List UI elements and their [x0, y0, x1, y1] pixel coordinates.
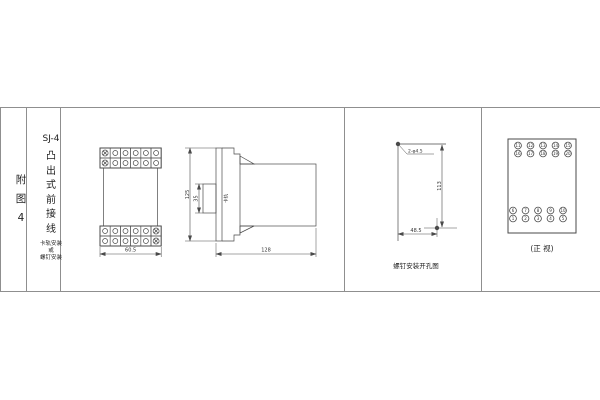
relay-body-side: [240, 164, 316, 226]
figure-label-char: 附: [16, 171, 27, 190]
svg-text:16: 16: [515, 151, 521, 156]
mounting-note-line: 卡轨安装: [40, 241, 62, 248]
figure-label-char: 图: [16, 190, 27, 209]
svg-text:3: 3: [537, 216, 540, 221]
figure-label-column: 附 图 4: [8, 108, 34, 291]
bottom-step-profile: [222, 226, 240, 241]
svg-text:4: 4: [549, 216, 552, 221]
leader-line: [398, 144, 407, 154]
figure-label-char: 4: [18, 209, 25, 228]
model-label: SJ-4: [42, 133, 59, 145]
drawing-sheet: 附 图 4 SJ-4 凸 出 式 前 接 线 卡轨安装 或 螺钉安装: [0, 0, 600, 400]
svg-text:18: 18: [540, 151, 546, 156]
terminal-numbers-bottom: 67891012345: [510, 207, 567, 222]
rail-dim-text: 35: [194, 195, 200, 201]
svg-text:14: 14: [553, 143, 559, 148]
svg-text:10: 10: [560, 208, 566, 213]
svg-text:7: 7: [524, 208, 527, 213]
svg-text:19: 19: [553, 151, 559, 156]
horizontal-dim-text: 48.5: [410, 228, 421, 234]
title-char: 式: [46, 179, 56, 194]
vertical-dim-text: 113: [437, 181, 443, 191]
width-dim-text: 60.5: [125, 248, 136, 254]
terminal-blocks-layer: [100, 148, 161, 246]
svg-text:6: 6: [512, 208, 515, 213]
mounting-note: 卡轨安装 或 螺钉安装: [40, 241, 62, 262]
front-view-caption: (正 视): [530, 243, 553, 253]
figure-band: 附 图 4 SJ-4 凸 出 式 前 接 线 卡轨安装 或 螺钉安装: [0, 107, 600, 292]
svg-text:5: 5: [562, 216, 565, 221]
title-char: 接: [46, 208, 56, 223]
drill-diagram-panel: 2-φ4.5 113 48.5 螺钉安装开孔图: [352, 108, 489, 291]
svg-text:20: 20: [565, 151, 571, 156]
divider-left-border: [0, 108, 1, 291]
top-step-profile: [222, 148, 240, 164]
title-char: 凸: [46, 150, 56, 165]
svg-text:17: 17: [528, 151, 534, 156]
svg-text:1: 1: [512, 216, 515, 221]
drill-diagram-svg: 2-φ4.5 113 48.5 螺钉安装开孔图: [352, 108, 489, 293]
svg-text:2: 2: [524, 216, 527, 221]
title-column: SJ-4 凸 出 式 前 接 线 卡轨安装 或 螺钉安装: [34, 108, 68, 291]
din-rail-notch: [203, 184, 216, 213]
front-plate-profile: [216, 148, 222, 241]
top-flange-wedge: [240, 156, 254, 164]
title-char: 前: [46, 194, 56, 209]
rail-label: 卡轨: [223, 194, 230, 203]
outline-views-panel: 60.5 卡轨 35 125: [68, 108, 352, 291]
mounting-note-line: 螺钉安装: [40, 255, 62, 262]
svg-text:8: 8: [537, 208, 540, 213]
svg-text:11: 11: [515, 143, 521, 148]
svg-text:12: 12: [528, 143, 534, 148]
title-char: 出: [46, 165, 56, 180]
terminal-view-panel: 11121314151617181920 67891012345 (正 视): [489, 108, 600, 291]
terminal-numbers-top: 11121314151617181920: [515, 142, 572, 157]
outline-views-svg: 60.5 卡轨 35 125: [68, 108, 352, 293]
drill-caption: 螺钉安装开孔图: [393, 261, 439, 270]
svg-text:13: 13: [540, 143, 546, 148]
terminal-view-svg: 11121314151617181920 67891012345 (正 视): [489, 108, 600, 293]
mounting-note-line: 或: [48, 248, 54, 255]
svg-text:15: 15: [565, 143, 571, 148]
svg-text:9: 9: [549, 208, 552, 213]
depth-dim-text: 128: [261, 248, 271, 254]
holes-label: 2-φ4.5: [408, 149, 423, 155]
title-char: 线: [46, 223, 56, 238]
title-vertical-text: 凸 出 式 前 接 线: [46, 150, 56, 237]
bottom-flange-wedge: [240, 226, 254, 233]
height-dim-text: 125: [185, 190, 191, 200]
relay-body-front: [104, 168, 158, 226]
